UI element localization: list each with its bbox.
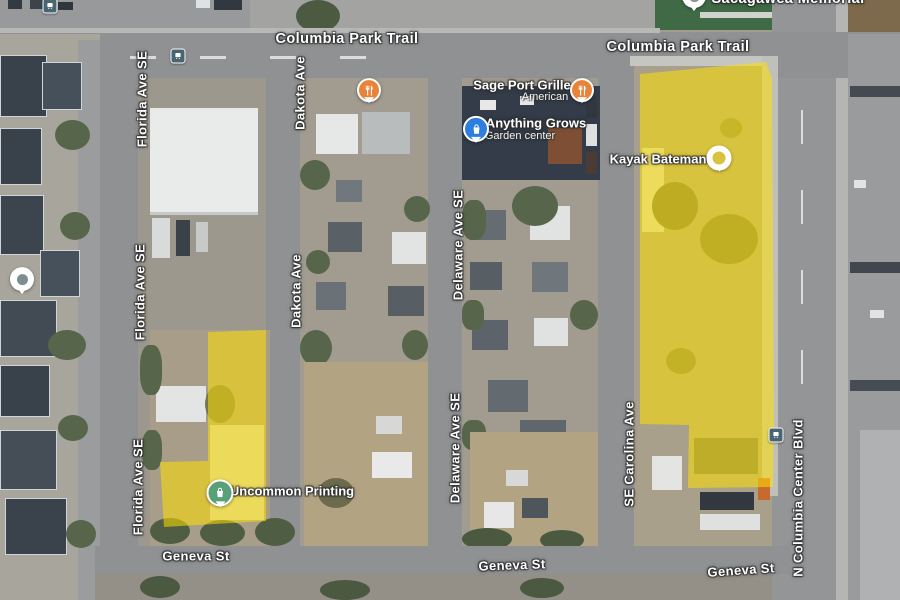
satellite-map[interactable]: Columbia Park Trail Columbia Park Trail …: [0, 0, 900, 600]
bus-glyph: [174, 52, 183, 61]
shopping-bag-glyph: [214, 486, 227, 499]
street-label-n-columbia-center-blvd: N Columbia Center Blvd: [791, 419, 806, 577]
poi-dot: [17, 274, 28, 285]
bus-stop-icon[interactable]: [171, 49, 186, 64]
white-poi-pin-icon[interactable]: [10, 267, 34, 291]
street-label-florida-ave-se: Florida Ave SE: [135, 51, 150, 147]
poi-ring-icon[interactable]: [707, 146, 732, 171]
poi-label-anything-grows[interactable]: Anything Grows: [486, 116, 586, 131]
street-label-geneva-st: Geneva St: [478, 556, 546, 573]
street-label-delaware-ave-se: Delaware Ave SE: [451, 190, 466, 301]
fork-knife-glyph: [363, 84, 376, 97]
street-label-florida-ave-se: Florida Ave SE: [133, 244, 148, 340]
bus-stop-icon[interactable]: [769, 428, 784, 443]
shopping-bag-glyph: [470, 122, 483, 135]
street-label-dakota-ave: Dakota Ave: [289, 254, 304, 328]
poi-category-anything-grows: Garden center: [485, 130, 555, 142]
street-label-columbia-park-trail: Columbia Park Trail: [276, 31, 419, 47]
shopping-pin-icon[interactable]: [463, 116, 489, 142]
poi-dot: [689, 0, 700, 2]
street-label-columbia-park-trail: Columbia Park Trail: [607, 39, 750, 55]
fork-knife-glyph: [576, 84, 589, 97]
street-label-se-carolina-ave: SE Carolina Ave: [622, 401, 637, 506]
poi-label-sacagawea-memorial: Sacagawea Memorial: [711, 0, 864, 7]
restaurant-pin-icon[interactable]: [357, 78, 381, 102]
poi-category-sage-port-grille: American: [522, 91, 568, 103]
street-label-dakota-ave: Dakota Ave: [293, 56, 308, 130]
bus-glyph: [772, 431, 781, 440]
bus-glyph: [46, 2, 55, 11]
store-pin-icon[interactable]: [207, 479, 234, 506]
street-label-delaware-ave-se: Delaware Ave SE: [448, 393, 463, 504]
street-label-geneva-st: Geneva St: [162, 549, 229, 564]
poi-label-kayak-bateman[interactable]: Kayak Bateman: [610, 152, 707, 167]
poi-label-uncommon-printing[interactable]: Uncommon Printing: [230, 484, 354, 499]
highlight-east-parcel[interactable]: [640, 62, 774, 488]
bus-stop-icon[interactable]: [43, 0, 58, 14]
restaurant-pin-icon[interactable]: [570, 78, 594, 102]
street-label-florida-ave-se: Florida Ave SE: [131, 439, 146, 535]
